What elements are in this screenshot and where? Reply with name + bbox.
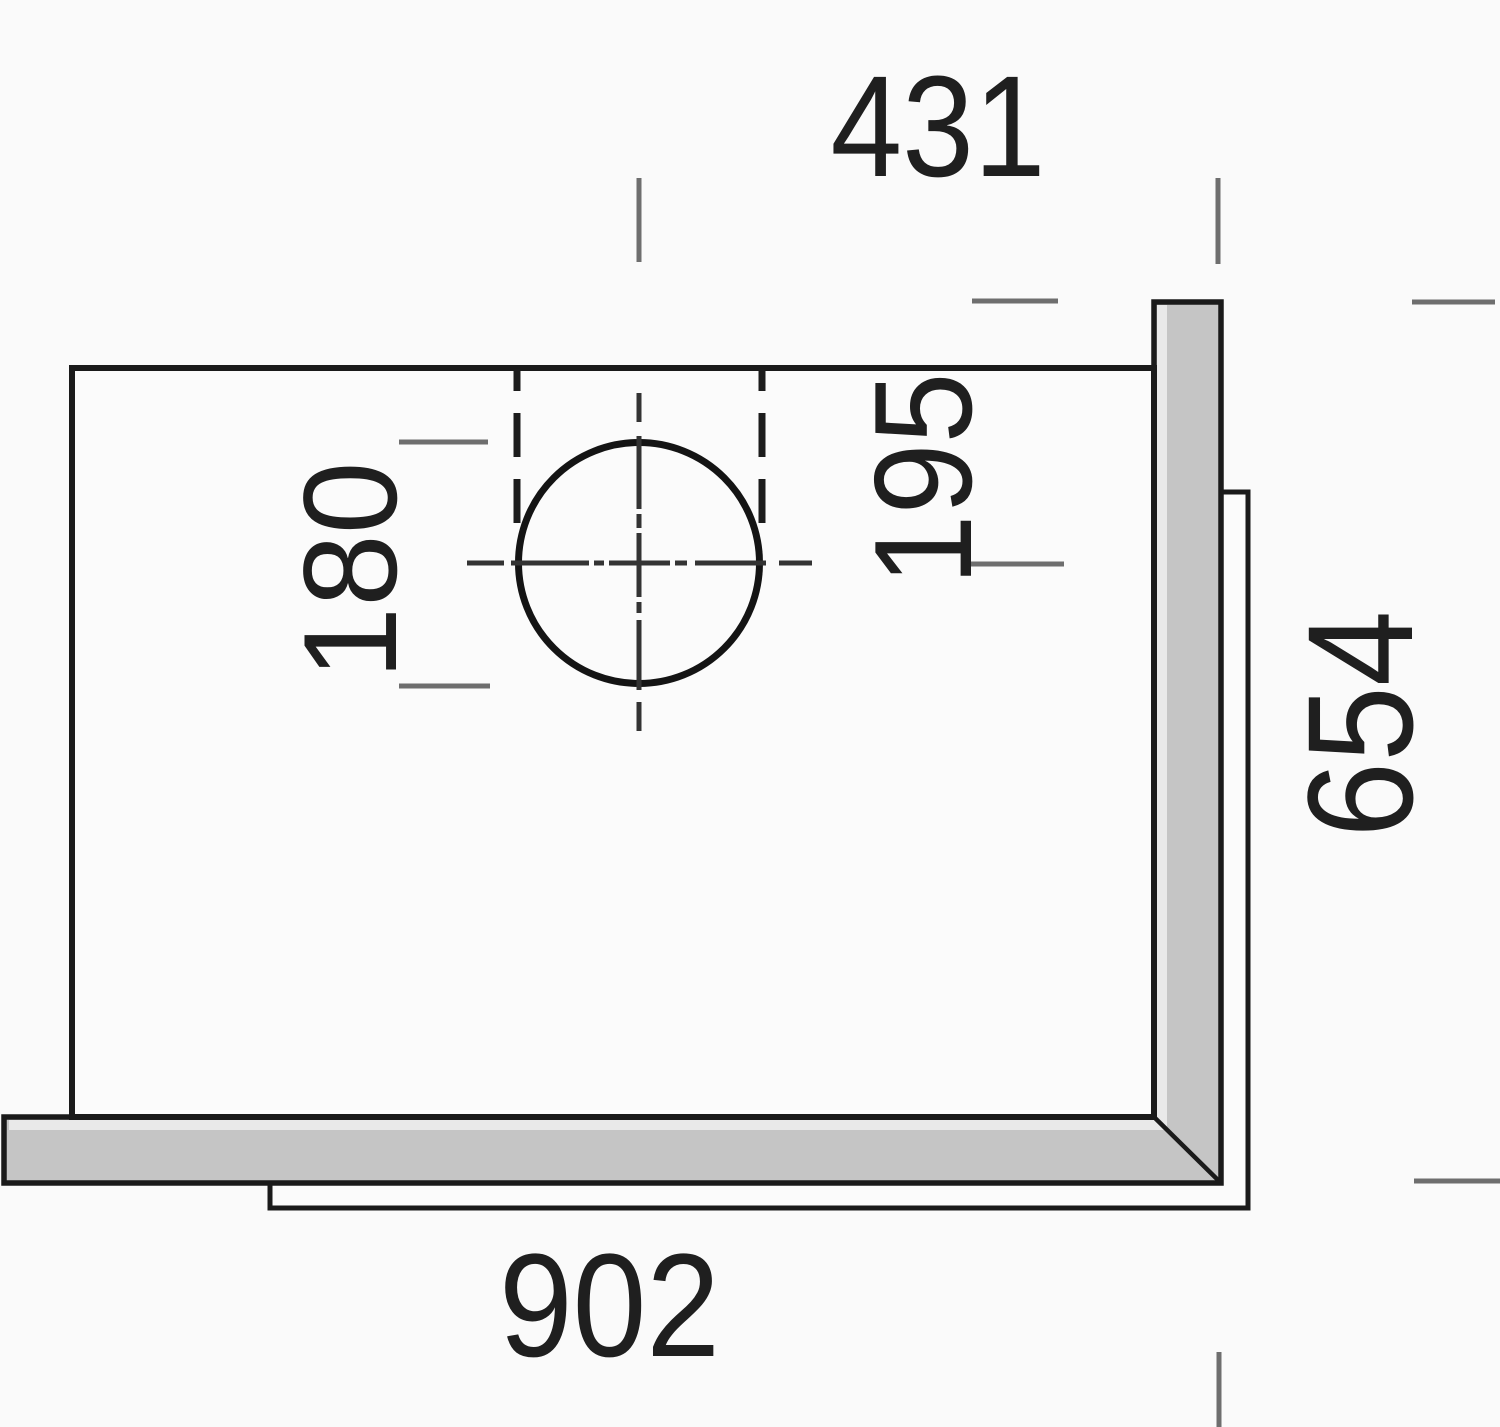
svg-text:180: 180: [277, 462, 425, 680]
svg-text:902: 902: [499, 1224, 720, 1388]
svg-text:195: 195: [846, 373, 1001, 586]
svg-text:431: 431: [831, 46, 1046, 207]
svg-text:654: 654: [1276, 611, 1444, 838]
